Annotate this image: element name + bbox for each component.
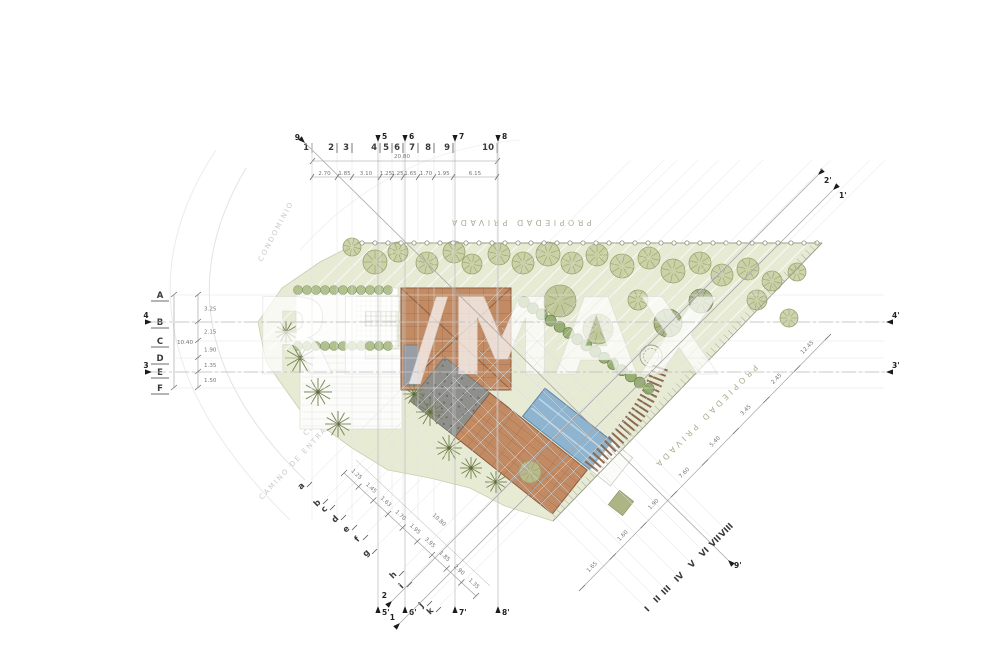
planter-box: [608, 490, 633, 515]
diag-grid-tick: [307, 482, 312, 487]
chain-right-tick: [733, 428, 739, 434]
dim-label: 3.45: [740, 404, 753, 417]
fence-post: [490, 241, 494, 245]
diag-grid-tick: [352, 525, 357, 530]
dim-label: 1.25: [391, 171, 404, 177]
fence-post: [789, 241, 793, 245]
site-plan-page: CONDOMINIO CAMINO DE ENTRADA CALLE CRUZ: [0, 0, 1000, 667]
section-label: 1': [839, 191, 847, 200]
diag-grid-label: f: [353, 535, 363, 545]
hatch-line: [797, 243, 904, 350]
grid-col-label: 7: [409, 143, 415, 153]
diag-grid-label: d: [330, 514, 341, 525]
tree-canopy: [488, 243, 510, 265]
dim-label: 6.15: [469, 171, 482, 177]
tree-icon: [536, 242, 560, 266]
section-label: 9: [295, 133, 300, 142]
palm-trunk: [447, 446, 450, 449]
section-label: 1: [390, 613, 395, 622]
diag-grid-label: c: [319, 504, 330, 515]
diag-total-dim: 10.80: [431, 513, 447, 529]
dim-label: 1.85: [338, 171, 351, 177]
dim-label: 12.45: [800, 340, 816, 356]
chain-right-tick: [794, 365, 800, 371]
section-label: 3': [892, 361, 900, 370]
dim-label: 1.95: [408, 523, 422, 536]
tree-canopy: [561, 252, 583, 274]
section-label: 9': [734, 561, 742, 570]
fence-post: [685, 241, 689, 245]
dim-label: 1.95: [437, 171, 450, 177]
section-arrow-icon: [375, 606, 380, 613]
dim-label: 1.70: [420, 171, 433, 177]
diag-grid-label: k: [425, 606, 436, 617]
chain-right-tick: [702, 460, 708, 466]
section-label: 2': [824, 176, 832, 185]
fence-post: [815, 241, 819, 245]
fence-post: [360, 241, 364, 245]
fence-post: [581, 241, 585, 245]
fence-post: [373, 241, 377, 245]
street-label-condominio: CONDOMINIO: [257, 200, 296, 263]
section-label: 4: [143, 311, 148, 320]
section-label: 8': [502, 608, 510, 617]
site-plan-canvas: CONDOMINIO CAMINO DE ENTRADA CALLE CRUZ: [0, 0, 1000, 667]
section-label: 5': [382, 608, 390, 617]
fence-post: [438, 241, 442, 245]
grid-row-label: C: [157, 337, 163, 347]
dim-label: 1.25: [349, 468, 363, 481]
dim-label: 7.60: [678, 466, 691, 479]
tree-icon: [737, 258, 759, 280]
diag-grid-tick: [436, 607, 441, 612]
tree-icon: [610, 254, 634, 278]
section-arrow-icon: [375, 135, 380, 142]
diag-grid-label: e: [341, 524, 352, 535]
grid-col-label: 5: [383, 143, 389, 153]
grid-col-label: 6: [394, 143, 400, 153]
fence-post: [763, 241, 767, 245]
tree-icon: [561, 252, 583, 274]
dim-label: 1.90: [204, 348, 217, 354]
fence-post: [711, 241, 715, 245]
dim-label: 2.70: [318, 171, 331, 177]
grid-col-label: 10: [482, 143, 494, 153]
tree-icon: [363, 250, 387, 274]
fence-post: [568, 241, 572, 245]
diag-grid-tick: [372, 549, 377, 554]
section-arrow-icon: [495, 135, 500, 142]
tree-icon: [488, 243, 510, 265]
dim-label: 5.40: [709, 435, 722, 448]
grid-row-label: B: [157, 318, 163, 328]
dim-label: 3.25: [204, 307, 217, 313]
dim-label: 1.50: [204, 378, 217, 384]
fence-post: [555, 241, 559, 245]
tree-icon: [462, 254, 482, 274]
fence-post: [659, 241, 663, 245]
grid-col-label: 3: [343, 143, 349, 153]
fence-post: [607, 241, 611, 245]
dim-label: 1.65: [586, 561, 599, 574]
section-arrow-icon: [452, 135, 457, 142]
tree-canopy: [610, 254, 634, 278]
dim-label: 2.45: [770, 372, 783, 385]
section-label: 8: [502, 132, 507, 141]
fence-post: [698, 241, 702, 245]
section-label: 3: [143, 361, 148, 370]
grid-col-label: 9: [444, 143, 450, 153]
fence-post: [516, 241, 520, 245]
section-arrow-icon: [145, 319, 152, 324]
diag-grid-tick: [399, 571, 404, 576]
fence-post: [646, 241, 650, 245]
diag-grid-tick: [363, 535, 368, 540]
fence-post: [529, 241, 533, 245]
row-total-dim: 10.40: [177, 340, 193, 346]
grid-row-label: A: [157, 291, 164, 301]
tree-icon: [747, 290, 767, 310]
tree-canopy: [462, 254, 482, 274]
chain-right-tick: [641, 522, 647, 528]
dim-label: 2.90: [452, 564, 466, 577]
dim-label: 2.15: [204, 330, 217, 336]
dim-label: 1.85: [437, 550, 451, 563]
section-label: 4': [892, 311, 900, 320]
dim-label: 1.45: [364, 482, 378, 495]
section-arrow-icon: [145, 369, 152, 374]
fence-post: [412, 241, 416, 245]
diag-grid-label: a: [296, 481, 307, 492]
col-total-dim: 20.80: [394, 154, 410, 160]
dim-label: 1.65: [404, 171, 417, 177]
remax-watermark: RE/MAX: [253, 276, 721, 399]
tree-icon: [638, 247, 660, 269]
diag-roman-label: I: [643, 605, 652, 614]
section-label: 5: [382, 132, 387, 141]
palm-trunk: [428, 410, 431, 413]
fence-post: [594, 241, 598, 245]
diag-grid-tick: [341, 515, 346, 520]
chain-right-tick: [764, 397, 770, 403]
tree-canopy: [747, 290, 767, 310]
dim-label: 3.95: [423, 537, 437, 550]
fence-post: [425, 241, 429, 245]
diag-grid-label: g: [361, 548, 372, 559]
diag-grid-label: h: [388, 570, 399, 581]
fence-post: [620, 241, 624, 245]
diag-grid-tick: [330, 505, 335, 510]
tree-canopy: [536, 242, 560, 266]
fence-post: [737, 241, 741, 245]
tree-icon: [788, 263, 806, 281]
hatch-line: [813, 243, 920, 350]
tree-canopy: [788, 263, 806, 281]
diag-grid-tick: [407, 582, 412, 587]
tree-canopy: [737, 258, 759, 280]
tree-icon: [689, 252, 711, 274]
fence-post: [386, 241, 390, 245]
tree-canopy: [689, 252, 711, 274]
fence-post: [672, 241, 676, 245]
hatch-line: [877, 243, 984, 350]
hatch-line: [861, 243, 968, 350]
chain-right-tick: [671, 491, 677, 497]
tree-canopy: [638, 247, 660, 269]
palm-trunk: [469, 466, 472, 469]
fence-post: [542, 241, 546, 245]
grid-row-label: F: [157, 384, 163, 394]
chain-right-tick: [579, 585, 585, 591]
fence-post: [464, 241, 468, 245]
section-arrow-icon: [495, 606, 500, 613]
section-arrow-icon: [886, 369, 893, 374]
fence-post: [633, 241, 637, 245]
diag-grid-tick: [427, 601, 432, 606]
section-label: 2: [382, 591, 387, 600]
dim-label: 1.63: [379, 496, 393, 509]
tree-icon: [780, 309, 798, 327]
fence-post: [399, 241, 403, 245]
tree-canopy: [512, 252, 534, 274]
section-label: 7': [459, 608, 467, 617]
hatch-line: [845, 243, 952, 350]
hatch-line: [829, 243, 936, 350]
section-arrow-icon: [452, 606, 457, 613]
fence-post: [477, 241, 481, 245]
grid-row-label: D: [156, 354, 163, 364]
grid-col-label: 8: [425, 143, 431, 153]
grid-row-label: E: [157, 368, 163, 378]
tree-icon: [586, 244, 608, 266]
fence-post: [503, 241, 507, 245]
dim-label: 3.10: [360, 171, 373, 177]
grid-col-label: 4: [371, 143, 377, 153]
dim-label: 1.60: [617, 529, 630, 542]
section-label: 6: [409, 132, 414, 141]
section-label: 7: [459, 132, 464, 141]
grid-col-label: 2: [328, 143, 334, 153]
dim-label: 1.35: [467, 578, 481, 591]
diag-grid-tick: [323, 499, 328, 504]
fence-post: [802, 241, 806, 245]
section-arrow-icon: [402, 135, 407, 142]
dim-label: 1.90: [647, 498, 660, 511]
dim-label: 1.35: [204, 363, 217, 369]
boundary-label-top: PROPIEDAD PRIVADA: [448, 218, 591, 227]
tree-icon: [512, 252, 534, 274]
section-arrow-icon: [402, 606, 407, 613]
